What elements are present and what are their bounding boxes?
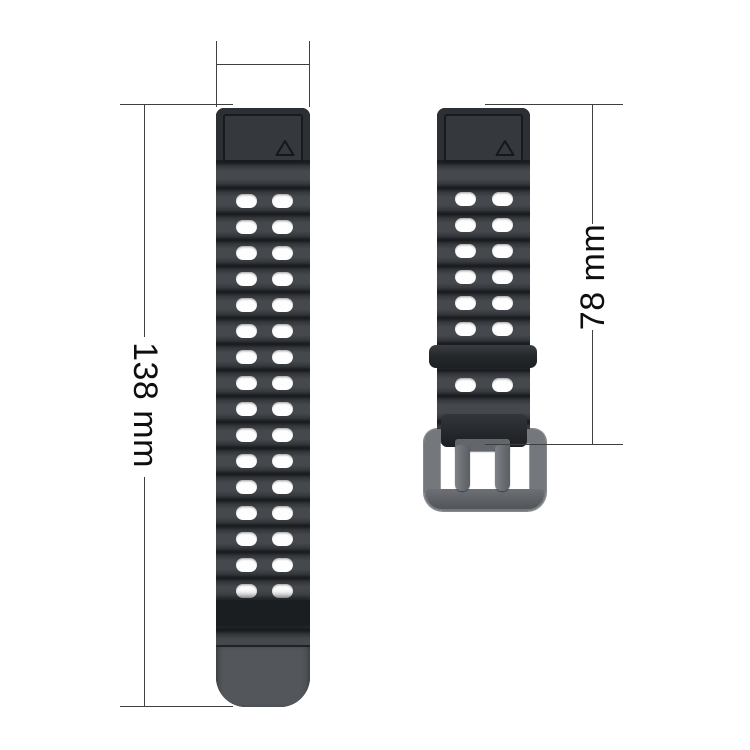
strap-hole [492, 218, 513, 232]
triangle-icon [275, 139, 295, 157]
lug-inset [444, 114, 523, 162]
strap-hole [492, 296, 513, 310]
strap-hole [492, 322, 513, 336]
triangle-icon [495, 139, 515, 157]
right-dimension-line-upper [592, 105, 593, 224]
strap-hole [272, 246, 293, 260]
strap-hole [455, 322, 476, 336]
product-dimension-image: 138 mm 78 mm [0, 0, 750, 750]
strap-hole [236, 480, 257, 494]
strap-keeper-loop [429, 345, 537, 368]
strap-hole [272, 402, 293, 416]
lug-inset [223, 114, 303, 162]
strap-hole [236, 532, 257, 546]
tail-groove [216, 600, 310, 626]
strap-hole [236, 246, 257, 260]
strap-hole [272, 350, 293, 364]
strap-hole [236, 558, 257, 572]
strap-hole [236, 402, 257, 416]
strap-hole [272, 584, 293, 598]
strap-hole [236, 350, 257, 364]
strap-tail-tip [216, 645, 310, 707]
strap-hole [272, 220, 293, 234]
strap-hole [272, 532, 293, 546]
lug-end [437, 108, 530, 162]
strap-hole [272, 324, 293, 338]
strap-hole [455, 270, 476, 284]
strap-hole [455, 244, 476, 258]
right-dimension-line-lower [592, 330, 593, 445]
strap-hole [272, 506, 293, 520]
left-dimension-top-tick [120, 104, 233, 105]
strap-hole [492, 244, 513, 258]
strap-hole [236, 428, 257, 442]
strap-hole [236, 194, 257, 208]
ridged-texture [216, 162, 310, 645]
strap-hole [236, 376, 257, 390]
ridged-texture [437, 162, 530, 434]
watch-band-short-strap [437, 108, 530, 434]
watch-band-long-strap [216, 108, 310, 707]
width-bracket-left-line [216, 41, 217, 107]
width-bracket-right-line [309, 41, 310, 107]
strap-hole [236, 298, 257, 312]
strap-hole [492, 378, 513, 392]
strap-hole [492, 270, 513, 284]
strap-hole [272, 558, 293, 572]
strap-hole [455, 378, 476, 392]
width-bracket-crossline [216, 64, 310, 65]
strap-hole [236, 454, 257, 468]
right-dimension-top-tick [485, 104, 623, 105]
strap-hole [236, 506, 257, 520]
strap-hole [272, 376, 293, 390]
left-dimension-line-lower [144, 477, 145, 706]
strap-hole [236, 324, 257, 338]
strap-hole [272, 454, 293, 468]
left-dimension-line-upper [144, 105, 145, 337]
strap-hole [455, 218, 476, 232]
buckle-prong [495, 445, 510, 491]
lug-end [216, 108, 310, 162]
strap-hole [272, 298, 293, 312]
right-dimension-bottom-tick [485, 444, 623, 445]
strap-hole [272, 272, 293, 286]
strap-hole [236, 584, 257, 598]
strap-hole [492, 192, 513, 206]
left-length-label: 138 mm [128, 342, 162, 468]
buckle-prong [455, 445, 470, 491]
strap-hole [272, 428, 293, 442]
buckle-bottom-bar [426, 489, 544, 509]
strap-hole [455, 296, 476, 310]
strap-hole [272, 480, 293, 494]
right-length-label: 78 mm [576, 224, 610, 330]
strap-hole [455, 192, 476, 206]
strap-hole [236, 220, 257, 234]
strap-hole [236, 272, 257, 286]
strap-hole [272, 194, 293, 208]
